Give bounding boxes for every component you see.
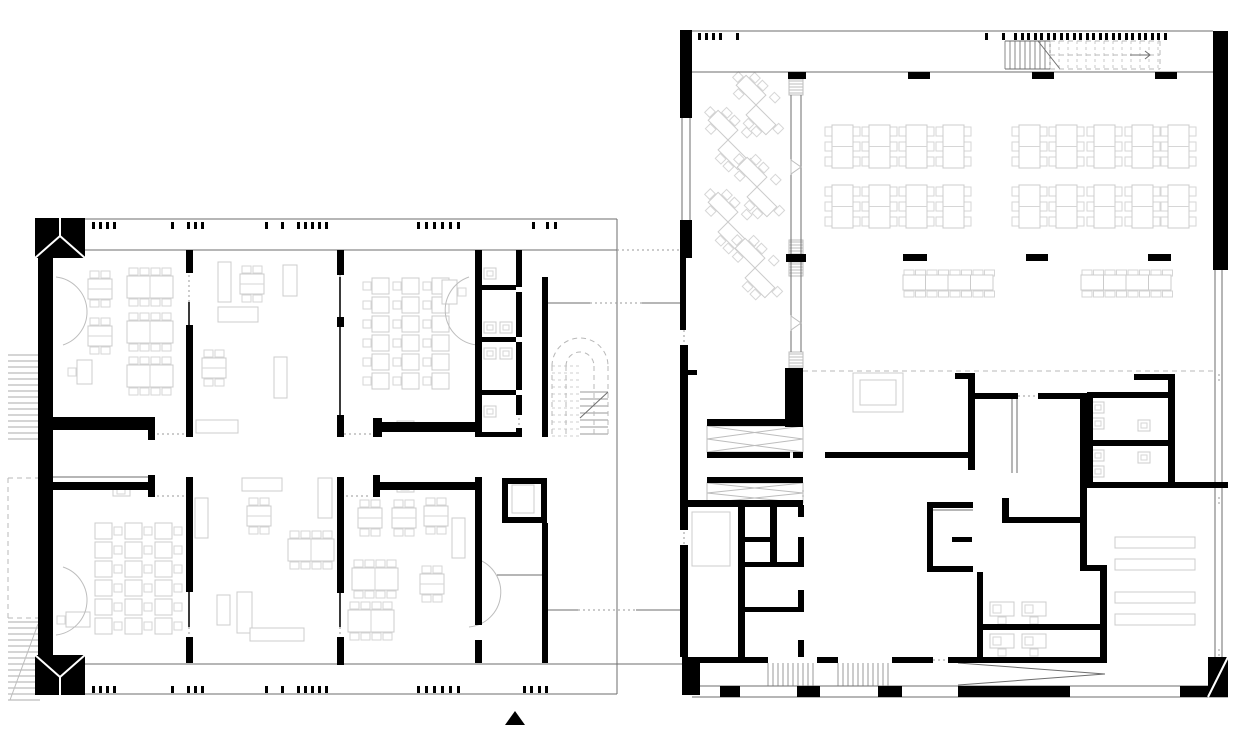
window-tick	[99, 686, 102, 693]
plan-path	[469, 559, 501, 627]
north-arrow-icon	[505, 711, 525, 725]
window-tick	[433, 222, 436, 229]
window-tick	[417, 222, 420, 229]
plan-path	[566, 352, 594, 366]
window-tick	[1144, 33, 1147, 40]
window-tick	[1118, 33, 1121, 40]
window-tick	[441, 686, 444, 693]
window-tick	[311, 686, 314, 693]
window-tick	[1131, 33, 1134, 40]
window-tick	[554, 222, 557, 229]
window-tick	[719, 33, 722, 40]
window-tick	[1047, 33, 1050, 40]
window-tick	[1040, 33, 1043, 40]
annotation-layer	[505, 711, 525, 725]
window-tick	[985, 33, 988, 40]
window-tick	[1157, 33, 1160, 40]
window-tick	[425, 686, 428, 693]
stair-treads	[768, 663, 813, 686]
floor-plan-page	[0, 0, 1240, 744]
window-tick	[1151, 33, 1154, 40]
stair-treads	[838, 663, 888, 686]
window-tick	[417, 686, 420, 693]
window-tick	[318, 686, 321, 693]
window-tick	[325, 222, 328, 229]
window-tick	[265, 686, 268, 693]
window-tick	[1079, 33, 1082, 40]
window-tick	[1092, 33, 1095, 40]
window-tick	[281, 222, 284, 229]
window-tick	[113, 686, 116, 693]
window-tick	[325, 686, 328, 693]
plan-path	[791, 316, 801, 330]
window-tick	[311, 222, 314, 229]
window-tick	[1021, 33, 1024, 40]
window-tick	[1105, 33, 1108, 40]
window-tick	[457, 686, 460, 693]
window-tick	[532, 222, 535, 229]
window-tick	[736, 33, 739, 40]
window-tick	[1099, 33, 1102, 40]
window-tick	[106, 222, 109, 229]
plan-path	[1130, 51, 1150, 59]
window-tick	[92, 222, 95, 229]
window-tick	[297, 222, 300, 229]
window-tick	[297, 686, 300, 693]
window-tick	[1112, 33, 1115, 40]
window-tick	[457, 222, 460, 229]
window-tick	[201, 686, 204, 693]
ticks-layer	[92, 33, 1167, 693]
window-tick	[1086, 33, 1089, 40]
window-tick	[92, 686, 95, 693]
window-tick	[546, 222, 549, 229]
window-tick	[304, 222, 307, 229]
furniture-layer	[57, 64, 1196, 656]
window-tick	[1125, 33, 1128, 40]
window-tick	[1034, 33, 1037, 40]
window-tick	[538, 686, 541, 693]
window-tick	[99, 222, 102, 229]
window-tick	[171, 222, 174, 229]
mullion-hatch	[789, 352, 803, 368]
plan-path	[791, 160, 801, 174]
window-tick	[281, 686, 284, 693]
window-tick	[1053, 33, 1056, 40]
window-tick	[1027, 33, 1030, 40]
window-tick	[1066, 33, 1069, 40]
window-tick	[187, 686, 190, 693]
stair-treads	[1005, 41, 1050, 69]
window-tick	[712, 33, 715, 40]
window-tick	[201, 222, 204, 229]
window-tick	[1014, 33, 1017, 40]
plan-path	[56, 277, 87, 345]
ramp-xbox	[707, 426, 803, 452]
window-tick	[171, 686, 174, 693]
window-tick	[265, 222, 268, 229]
window-tick	[523, 686, 526, 693]
window-tick	[449, 222, 452, 229]
window-tick	[698, 33, 701, 40]
floor-plan-canvas	[0, 0, 1240, 744]
window-tick	[1073, 33, 1076, 40]
window-tick	[530, 686, 533, 693]
mullion-hatch	[789, 79, 803, 95]
window-tick	[441, 222, 444, 229]
window-tick	[545, 686, 548, 693]
window-tick	[433, 686, 436, 693]
window-tick	[449, 686, 452, 693]
stair-treads	[8, 355, 40, 439]
window-tick	[425, 222, 428, 229]
window-tick	[194, 222, 197, 229]
window-tick	[318, 222, 321, 229]
plan-path	[10, 624, 38, 700]
window-tick	[187, 222, 190, 229]
window-tick	[1164, 33, 1167, 40]
window-tick	[113, 222, 116, 229]
window-tick	[1002, 33, 1005, 40]
window-tick	[705, 33, 708, 40]
window-tick	[1060, 33, 1063, 40]
window-tick	[106, 686, 109, 693]
window-tick	[194, 686, 197, 693]
window-tick	[1138, 33, 1141, 40]
window-tick	[304, 686, 307, 693]
